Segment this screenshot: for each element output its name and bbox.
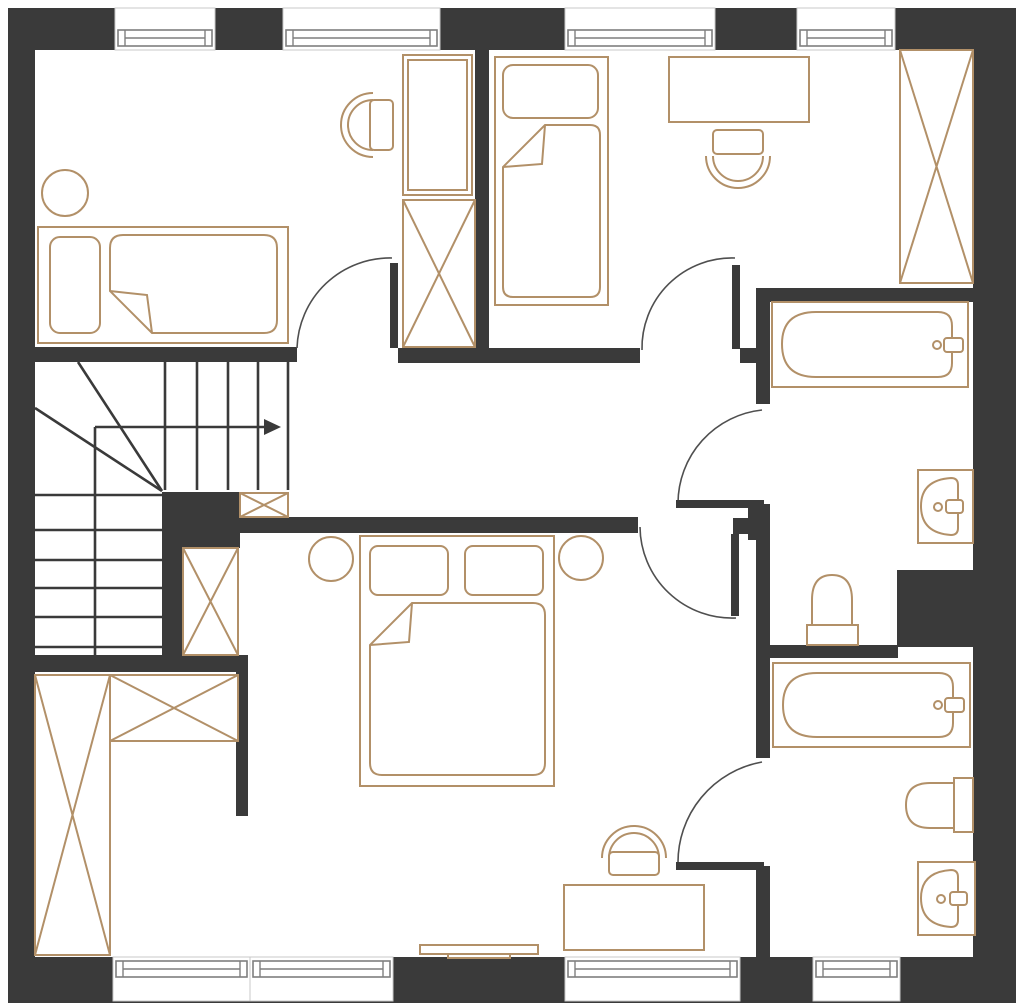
nightstand-round-right [559, 536, 603, 580]
sink-1-part-4 [946, 500, 963, 513]
double-bed-part-4 [370, 603, 545, 775]
toilet-1-part-2 [807, 625, 858, 645]
double-bed-part-2 [370, 546, 448, 595]
wall-outer-left [8, 8, 35, 1003]
desk-chair-3-part-3 [609, 852, 659, 875]
wall-master-north [238, 517, 638, 533]
sink-1 [918, 470, 973, 543]
floor-plan-page [0, 0, 1024, 1007]
wall-hall-stub-east [740, 348, 756, 363]
wall-duct-block [897, 570, 973, 647]
wall-hall-corner-b [748, 504, 770, 540]
hall-cabinet-x-small [240, 493, 288, 517]
window-bottom-4 [813, 957, 900, 1001]
desk-chair-2-part-3 [713, 130, 763, 154]
door-master-bedroom-leaf [731, 534, 739, 616]
wall-bath1-west-upper [756, 288, 770, 404]
double-bed [360, 536, 554, 786]
tv-console-part-2 [448, 954, 510, 958]
single-bed-2-part-2 [503, 65, 598, 118]
floor-plan [0, 0, 1024, 1007]
bathtub-1-part-4 [944, 338, 963, 352]
tall-cabinet-1 [403, 55, 472, 195]
window-top-3 [565, 8, 715, 50]
side-table-round-1 [42, 170, 88, 216]
window-top-4 [797, 8, 895, 50]
nightstand-round-left [309, 537, 353, 581]
door-bathroom-2-leaf [676, 862, 764, 870]
desk-2-part-1 [669, 57, 809, 122]
wardrobe-x-2 [900, 50, 973, 283]
door-bedroom-1-leaf [390, 263, 398, 348]
window-top-1 [115, 8, 215, 50]
wall-bedroom1-bedroom2-divider [475, 50, 489, 350]
wall-outer-right [973, 8, 1016, 1003]
wardrobe-x-1 [403, 200, 475, 347]
nightstand-round-left-part-1 [309, 537, 353, 581]
bathtub-1 [772, 302, 968, 387]
toilet-2-part-2 [954, 778, 973, 832]
desk-3-part-1 [564, 885, 704, 950]
sink-2 [918, 862, 975, 935]
wall-bath2-west-lower [756, 866, 770, 958]
wall-bath-divider [768, 645, 898, 658]
window-bottom-1 [113, 957, 250, 1001]
tall-cabinet-1-part-1 [403, 55, 472, 195]
wall-bedroom1-south-west [35, 347, 297, 362]
double-bed-part-3 [465, 546, 543, 595]
wall-stair-east [162, 492, 183, 672]
window-bottom-3 [565, 957, 740, 1001]
window-bottom-2 [250, 957, 393, 1001]
desk-3 [564, 885, 704, 950]
wall-bedroom1-south-east [398, 348, 640, 363]
single-bed-1 [38, 227, 288, 343]
closet-wardrobe-x-vertical [35, 675, 110, 955]
niche-cabinet-x [183, 548, 238, 655]
door-bedroom-2-leaf [732, 265, 740, 349]
sink-2-part-4 [950, 892, 967, 905]
door-bathroom-1-leaf [676, 500, 764, 508]
desk-2 [669, 57, 809, 122]
wall-bath1-north [756, 288, 973, 302]
bathtub-2-part-4 [945, 698, 964, 712]
desk-chair-1-part-3 [370, 100, 393, 150]
single-bed-2 [495, 57, 608, 305]
nightstand-round-right-part-1 [559, 536, 603, 580]
window-top-2 [283, 8, 440, 50]
wall-bath1-west-mid [756, 504, 770, 758]
bathtub-2 [773, 663, 970, 747]
side-table-round-1-part-1 [42, 170, 88, 216]
wall-stair-south [35, 655, 248, 672]
single-bed-1-part-2 [50, 237, 100, 333]
closet-wardrobe-x-horizontal [110, 675, 238, 741]
tv-console-part-1 [420, 945, 538, 954]
